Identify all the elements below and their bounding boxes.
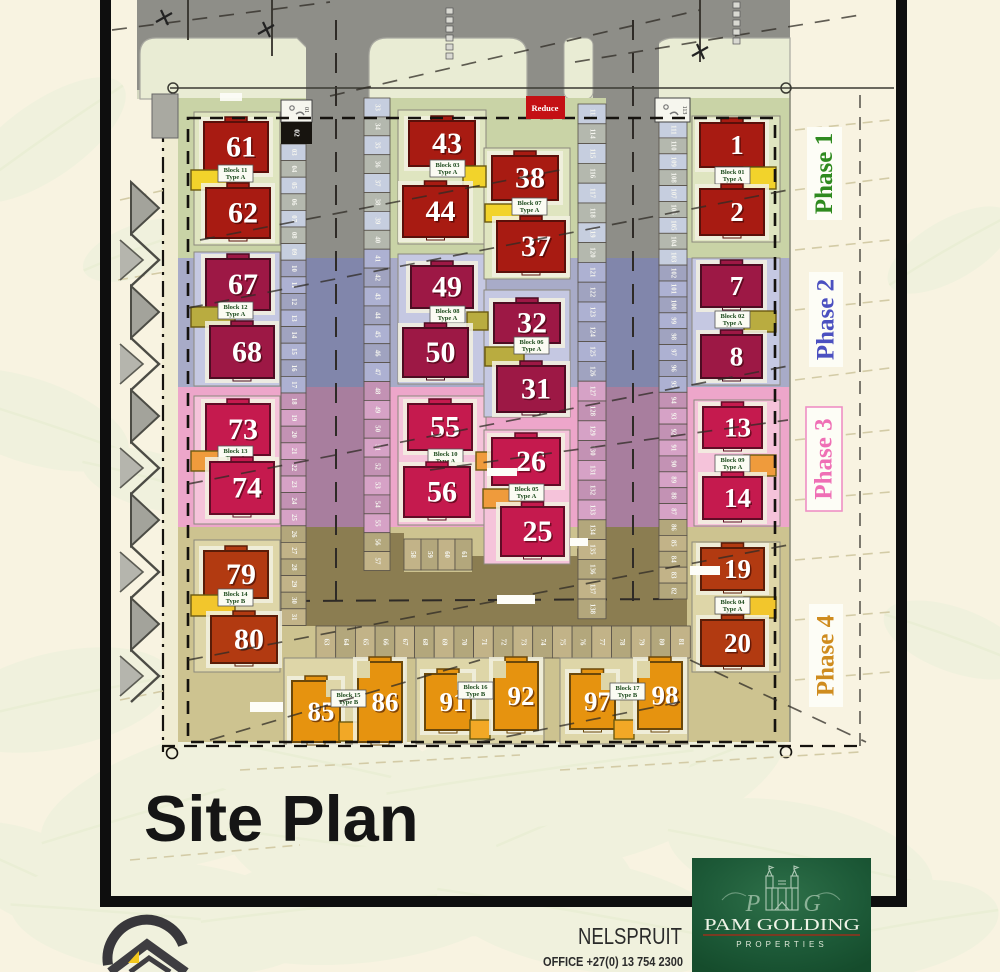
svg-text:104: 104 [670,236,677,247]
svg-text:Block 07: Block 07 [517,200,542,207]
svg-text:22: 22 [290,464,297,471]
svg-text:73: 73 [228,413,258,446]
svg-text:131: 131 [589,465,596,476]
svg-text:97: 97 [670,349,677,356]
svg-text:19: 19 [290,415,297,422]
svg-text:41: 41 [374,255,381,262]
svg-text:Block 03: Block 03 [435,162,460,169]
svg-text:Type A: Type A [522,346,542,353]
svg-text:137: 137 [589,584,596,595]
svg-text:Block 04: Block 04 [720,599,745,606]
svg-text:67: 67 [401,639,408,646]
svg-text:77: 77 [598,639,605,646]
svg-text:88: 88 [670,492,677,499]
svg-text:1: 1 [730,130,744,160]
svg-text:NELSPRUIT: NELSPRUIT [578,923,682,949]
svg-text:133: 133 [589,505,596,516]
svg-text:68: 68 [421,639,428,646]
svg-text:103: 103 [670,252,677,263]
svg-text:78: 78 [618,639,625,646]
svg-text:46: 46 [374,350,381,357]
svg-text:118: 118 [589,208,596,218]
svg-text:Block 11: Block 11 [224,167,248,174]
svg-text:98: 98 [652,681,679,711]
svg-text:115: 115 [589,149,596,159]
svg-text:26: 26 [516,445,546,478]
svg-text:16: 16 [290,365,297,372]
svg-text:129: 129 [589,426,596,437]
svg-text:126: 126 [589,366,596,377]
svg-text:OFFICE +27(0) 13 754 2300: OFFICE +27(0) 13 754 2300 [543,954,683,969]
svg-text:105: 105 [670,220,677,231]
svg-text:56: 56 [427,476,457,509]
svg-text:108: 108 [670,173,677,184]
svg-text:59: 59 [426,551,433,558]
svg-text:102: 102 [670,268,677,279]
svg-text:86: 86 [670,524,677,531]
svg-text:92: 92 [508,681,535,711]
svg-text:09: 09 [290,249,297,256]
svg-text:82: 82 [670,588,677,595]
svg-text:79: 79 [638,639,645,646]
svg-text:49: 49 [374,406,381,413]
svg-text:74: 74 [539,639,546,646]
svg-text:Type A: Type A [438,169,458,176]
svg-text:120: 120 [589,247,596,258]
svg-text:20: 20 [724,628,751,658]
svg-text:21: 21 [290,448,297,455]
svg-text:47: 47 [374,369,381,376]
svg-text:50: 50 [426,336,456,369]
svg-text:05: 05 [290,182,297,189]
svg-text:125: 125 [589,346,596,357]
svg-text:93: 93 [670,413,677,420]
svg-text:Block 01: Block 01 [720,169,744,176]
svg-text:27: 27 [290,547,297,554]
svg-text:74: 74 [232,472,262,505]
svg-text:89: 89 [670,476,677,483]
svg-text:Type A: Type A [226,174,246,181]
svg-text:31: 31 [290,614,297,621]
svg-text:138: 138 [589,604,596,615]
svg-text:123: 123 [589,307,596,318]
svg-text:81: 81 [677,639,684,646]
svg-text:113: 113 [681,106,687,115]
svg-text:33: 33 [374,104,381,111]
svg-text:58: 58 [409,551,416,558]
svg-text:19: 19 [724,554,751,584]
svg-text:62: 62 [228,197,258,230]
svg-text:Type A: Type A [723,176,743,183]
svg-text:67: 67 [228,268,258,301]
svg-text:95: 95 [670,381,677,388]
svg-text:14: 14 [290,332,297,339]
svg-text:132: 132 [589,485,596,496]
svg-text:72: 72 [500,639,507,646]
svg-text:50: 50 [374,425,381,432]
svg-text:60: 60 [443,551,450,558]
svg-text:109: 109 [670,157,677,168]
svg-text:Phase 3: Phase 3 [811,418,838,499]
svg-text:85: 85 [308,697,335,727]
svg-text:121: 121 [589,267,596,278]
svg-text:87: 87 [670,508,677,515]
svg-text:43: 43 [374,293,381,300]
svg-text:7: 7 [730,271,744,301]
svg-text:Block 06: Block 06 [519,339,544,346]
svg-text:69: 69 [441,639,448,646]
svg-text:29: 29 [290,581,297,588]
svg-text:111: 111 [670,125,677,135]
svg-text:37: 37 [521,230,551,263]
svg-text:28: 28 [290,564,297,571]
svg-text:Type B: Type B [226,598,246,605]
svg-text:30: 30 [290,597,297,604]
svg-text:25: 25 [290,514,297,521]
svg-text:Type A: Type A [723,606,743,613]
svg-text:25: 25 [523,515,553,548]
svg-text:99: 99 [670,317,677,324]
svg-text:90: 90 [670,460,677,467]
svg-text:68: 68 [232,336,262,369]
svg-text:Block 12: Block 12 [223,304,247,311]
svg-text:55: 55 [430,411,460,444]
svg-text:PROPERTIES: PROPERTIES [736,940,827,949]
svg-text:66: 66 [381,639,388,646]
svg-text:Site Plan: Site Plan [144,782,419,855]
svg-text:PAM GOLDING: PAM GOLDING [704,915,860,934]
svg-text:63: 63 [322,639,329,646]
svg-text:83: 83 [670,572,677,579]
svg-text:55: 55 [374,520,381,527]
svg-text:14: 14 [724,483,751,513]
svg-text:56: 56 [374,539,381,546]
svg-text:79: 79 [226,558,256,591]
svg-text:116: 116 [589,168,596,178]
svg-text:44: 44 [374,312,381,319]
svg-text:85: 85 [670,540,677,547]
svg-text:Block 13: Block 13 [223,448,248,455]
svg-text:94: 94 [670,397,677,404]
svg-text:Block 02: Block 02 [720,313,744,320]
svg-text:Block 10: Block 10 [433,451,457,458]
svg-text:97: 97 [584,687,611,717]
svg-text:32: 32 [517,307,547,340]
svg-text:31: 31 [521,373,551,406]
svg-text:39: 39 [374,218,381,225]
svg-text:Block 14: Block 14 [223,591,248,598]
svg-text:Block 15: Block 15 [336,692,361,699]
svg-text:Phase 2: Phase 2 [813,279,840,360]
svg-text:107: 107 [670,188,677,199]
svg-text:03: 03 [290,149,297,156]
svg-text:P: P [745,891,761,917]
svg-text:02: 02 [293,129,302,137]
svg-text:54: 54 [374,501,381,508]
svg-text:Type A: Type A [226,311,246,318]
svg-text:45: 45 [374,331,381,338]
svg-text:Block 17: Block 17 [615,685,640,692]
svg-text:75: 75 [559,639,566,646]
svg-text:136: 136 [589,564,596,575]
svg-text:73: 73 [519,639,526,646]
svg-text:Block 16: Block 16 [463,684,488,691]
svg-text:122: 122 [589,287,596,298]
svg-text:110: 110 [670,141,677,151]
svg-text:Type B: Type B [618,692,638,699]
svg-text:124: 124 [589,327,596,338]
svg-text:15: 15 [290,348,297,355]
svg-text:37: 37 [374,180,381,187]
svg-text:134: 134 [589,525,596,536]
svg-text:38: 38 [374,199,381,206]
svg-text:117: 117 [589,188,596,198]
svg-text:20: 20 [290,431,297,438]
svg-text:84: 84 [670,556,677,563]
svg-text:Phase 4: Phase 4 [813,614,840,696]
svg-text:Type A: Type A [723,320,743,327]
svg-text:36: 36 [374,161,381,168]
svg-text:49: 49 [432,271,462,304]
svg-text:Block 05: Block 05 [514,486,539,493]
svg-text:23: 23 [290,481,297,488]
svg-text:01: 01 [303,107,309,113]
svg-text:128: 128 [589,406,596,417]
svg-text:Type B: Type B [339,699,359,706]
svg-text:44: 44 [426,195,456,228]
svg-text:64: 64 [342,639,349,646]
svg-text:11: 11 [290,282,297,289]
svg-text:04: 04 [290,166,297,173]
svg-text:100: 100 [670,300,677,311]
svg-text:12: 12 [290,298,297,305]
svg-text:80: 80 [657,639,664,646]
svg-text:61: 61 [226,131,256,164]
svg-text:26: 26 [290,531,297,538]
svg-text:65: 65 [362,639,369,646]
svg-text:53: 53 [374,482,381,489]
svg-text:35: 35 [374,142,381,149]
svg-text:48: 48 [374,388,381,395]
svg-text:Block 09: Block 09 [720,457,745,464]
svg-text:10: 10 [290,265,297,272]
svg-text:127: 127 [589,386,596,397]
svg-text:76: 76 [579,639,586,646]
svg-text:80: 80 [234,623,264,656]
svg-text:Phase 1: Phase 1 [811,133,838,214]
svg-text:52: 52 [374,463,381,470]
svg-text:71: 71 [480,639,487,646]
svg-text:24: 24 [290,498,297,505]
svg-text:70: 70 [460,639,467,646]
svg-text:Type B: Type B [466,691,486,698]
svg-text:08: 08 [290,232,297,239]
svg-text:40: 40 [374,236,381,243]
svg-text:91: 91 [670,445,677,452]
svg-text:Type A: Type A [438,315,458,322]
svg-text:Reduce: Reduce [532,103,559,113]
svg-text:135: 135 [589,544,596,555]
svg-text:96: 96 [670,365,677,372]
svg-text:17: 17 [290,381,297,388]
svg-text:101: 101 [670,284,677,295]
svg-text:Type A: Type A [520,207,540,214]
svg-text:34: 34 [374,123,381,130]
svg-text:98: 98 [670,333,677,340]
svg-text:Type A: Type A [723,464,743,471]
svg-text:57: 57 [374,558,381,565]
svg-text:42: 42 [374,274,381,281]
svg-text:13: 13 [290,315,297,322]
svg-text:Block 08: Block 08 [435,308,460,315]
svg-text:61: 61 [460,551,467,558]
svg-text:114: 114 [589,129,596,139]
svg-text:8: 8 [730,342,744,372]
svg-text:Type A: Type A [517,493,537,500]
svg-text:43: 43 [432,127,462,160]
svg-text:18: 18 [290,398,297,405]
svg-text:06: 06 [290,199,297,206]
